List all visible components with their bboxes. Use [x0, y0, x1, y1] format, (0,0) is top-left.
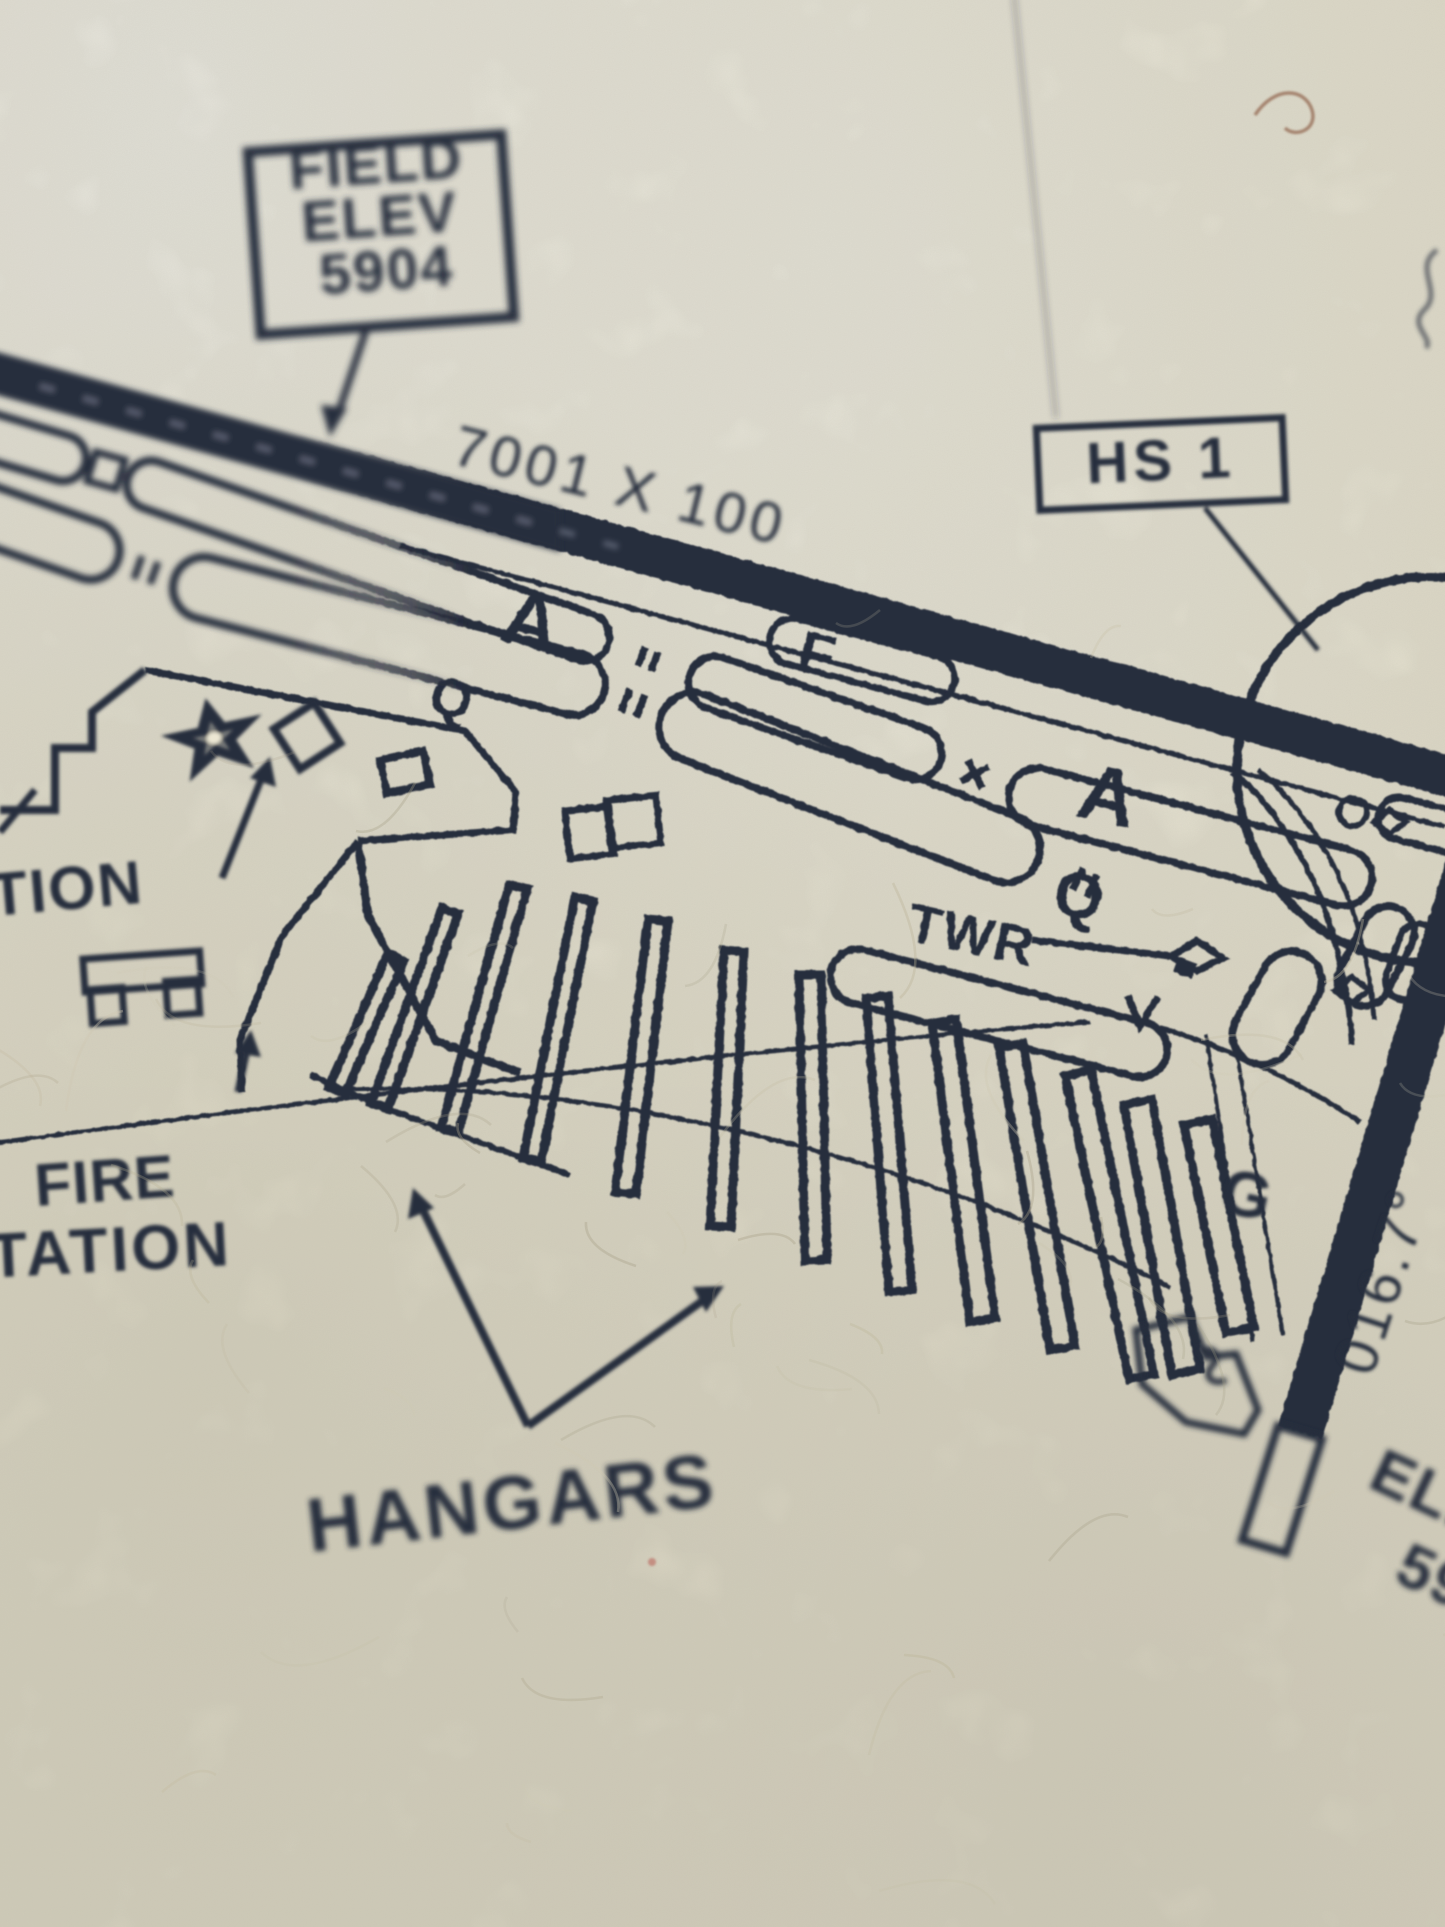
svg-text:HS 1: HS 1	[1085, 425, 1237, 496]
svg-text:TION: TION	[0, 848, 146, 929]
svg-text:5904: 5904	[317, 234, 456, 307]
svg-text:FIRE: FIRE	[32, 1142, 177, 1219]
